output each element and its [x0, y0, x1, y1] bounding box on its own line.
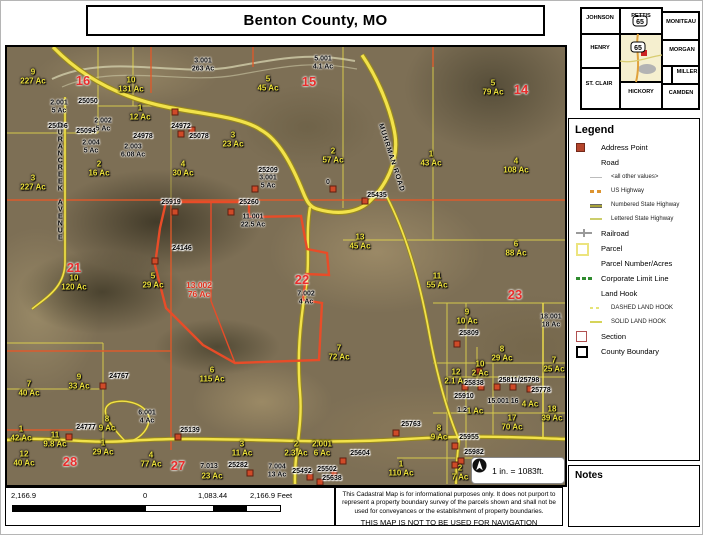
parcel-label: 740 Ac	[18, 380, 39, 397]
corporate-limit-icon	[575, 273, 595, 283]
address-label: 25209	[258, 167, 277, 175]
address-point-marker	[152, 258, 159, 265]
roads	[7, 47, 565, 484]
county-label-miller: MILLER	[677, 70, 698, 76]
legend-item-label: County Boundary	[601, 347, 659, 356]
parcel-label: 1.2	[457, 407, 467, 415]
address-label: 25910	[454, 393, 473, 401]
address-label: 25763	[401, 421, 420, 429]
legend-item-label: Section	[601, 332, 626, 341]
parcel-label: 3227 Ac	[20, 174, 46, 191]
address-point-marker	[330, 186, 337, 193]
north-arrow-icon	[472, 458, 487, 473]
numbered-state-highway-icon	[589, 200, 605, 210]
parcel-label: 2.0015 Ac	[50, 99, 68, 114]
scalebar-label-zero: 0	[143, 491, 147, 500]
section-icon	[575, 331, 595, 341]
parcel-label: 1110 Ac	[388, 460, 413, 477]
legend-item: Road	[575, 157, 693, 167]
section-number-label: 28	[63, 455, 77, 469]
parcel-label: 89 Ac	[99, 415, 116, 432]
county-label-henry: HENRY	[590, 46, 609, 52]
parcel-label: 0	[326, 179, 330, 187]
legend-item-label: Parcel	[601, 244, 622, 253]
parcel-label: 119.8 Ac	[43, 431, 66, 448]
address-label: 25778	[531, 387, 550, 395]
legend-item: Railroad	[575, 228, 693, 238]
parcel-label: 89 Ac	[431, 424, 448, 441]
parcel-label: 311 Ac	[232, 440, 253, 457]
parcel-label: 1839 Ac	[541, 405, 562, 422]
address-label: 25811/25798	[499, 377, 540, 385]
road-casing	[7, 47, 565, 484]
legend-item: Parcel Number/Acres	[575, 258, 693, 268]
county-label-pettis: PETTIS	[631, 14, 651, 20]
parcel-label: 2.0016 Ac	[312, 440, 332, 457]
notes-title: Notes	[575, 470, 693, 481]
address-label: 25078	[189, 133, 208, 141]
address-label: 25955	[459, 434, 478, 442]
address-point-marker	[393, 430, 400, 437]
address-label: 25838	[464, 380, 483, 388]
parcel-label: 23 Ac	[201, 473, 222, 482]
road-name-label: DURANCREEK AVENUE	[56, 123, 64, 242]
legend-item: Land Hook	[575, 288, 693, 298]
address-label: 25260	[239, 199, 258, 207]
parcel-label: 10131 Ac	[118, 76, 144, 93]
address-label: 25604	[350, 450, 369, 458]
parcel-label: 142 Ac	[10, 425, 31, 442]
address-label: 24978	[133, 133, 152, 141]
svg-text:65: 65	[634, 45, 642, 52]
parcel-label: 688 Ac	[505, 240, 526, 257]
parcel-label: 15.001 16	[487, 398, 518, 406]
parcel-label: 6115 Ac	[199, 366, 224, 383]
legend-item: County Boundary	[575, 346, 693, 356]
address-point-marker	[247, 470, 254, 477]
legend-item: Corporate Limit Line	[575, 273, 693, 283]
parcel-label: 216 Ac	[88, 160, 109, 177]
address-label: 24972	[171, 123, 190, 131]
svg-text:65: 65	[636, 19, 644, 26]
parcel-label: 143 Ac	[420, 150, 441, 167]
disclaimer-text: This Cadastral Map is for informational …	[340, 491, 558, 516]
dashed-land-hook-icon	[589, 303, 605, 313]
section-number-label: 16	[76, 74, 90, 88]
parcel-label: 579 Ac	[482, 79, 503, 96]
parcel-label: 2.0036.08 Ac	[121, 143, 145, 158]
legend-item: SOLID LAND HOOK	[589, 317, 693, 327]
road-other-icon	[589, 172, 605, 182]
blank-icon	[575, 157, 595, 167]
parcel-label: 933 Ac	[68, 373, 89, 390]
section-number-label: 14	[514, 83, 528, 97]
scalebar-panel: 2,166.9 0 1,083.44 2,166.9 Feet	[5, 487, 335, 526]
parcel-label: 910 Ac	[456, 308, 477, 325]
legend-item: DASHED LAND HOOK	[589, 303, 693, 313]
address-label: 25492	[292, 468, 311, 476]
address-point-marker	[172, 109, 179, 116]
scalebar-graphic	[12, 505, 281, 512]
us-highway-icon	[589, 186, 605, 196]
legend-item: Parcel	[575, 243, 693, 253]
legend-item-label: Corporate Limit Line	[601, 274, 669, 283]
parcel-lines	[7, 47, 565, 484]
parcel-label: 323 Ac	[222, 131, 243, 148]
address-point-icon	[575, 142, 595, 152]
parcel-label: 11.00122.5 Ac	[241, 213, 265, 228]
parcel-label: 6.0014 Ac	[138, 409, 156, 424]
legend-item-label: SOLID LAND HOOK	[611, 319, 666, 325]
scale-note-text: 1 in. = 1083ft.	[492, 466, 544, 476]
section-number-label: 21	[67, 261, 81, 275]
legend-item-label: US Highway	[611, 188, 644, 194]
address-point-marker	[340, 458, 347, 465]
address-label: 25435	[367, 192, 386, 200]
county-boundary-icon	[575, 346, 595, 356]
parcel-label: 102 Ac	[472, 360, 489, 377]
parcel-label: 2.0025 Ac	[94, 117, 112, 132]
page-title: Benton County, MO	[244, 12, 388, 29]
legend-item: US Highway	[589, 186, 693, 196]
county-label-stclair: ST. CLAIR	[586, 82, 613, 88]
lettered-state-highway-icon	[589, 214, 605, 224]
blank-icon	[575, 288, 595, 298]
parcel-label: 2.0045 Ac	[82, 139, 100, 154]
address-point-marker	[452, 443, 459, 450]
parcel-label: 257 Ac	[322, 147, 343, 164]
address-label: 25982	[464, 449, 483, 457]
parcel-label: 430 Ac	[172, 160, 193, 177]
section-number-label: 27	[171, 459, 185, 473]
section-number-label: 15	[302, 75, 316, 89]
county-label-moniteau: MONITEAU	[666, 20, 696, 26]
parcel-label: 529 Ac	[142, 272, 163, 289]
parcel-label: 725 Ac	[543, 356, 564, 373]
legend-item-label: <all other values>	[611, 174, 658, 180]
parcel-label: 27 Ac	[452, 464, 469, 481]
parcel-label: 1 Ac	[467, 408, 484, 417]
address-label: 25638	[322, 475, 341, 483]
parcel-label: 7.013	[200, 463, 218, 471]
address-point-marker	[228, 209, 235, 216]
parcel-label: 7.00413 Ac	[268, 463, 286, 478]
legend-item-label: DASHED LAND HOOK	[611, 305, 673, 311]
county-label-hickory: HICKORY	[628, 90, 654, 96]
legend-item-label: Lettered State Highway	[611, 216, 673, 222]
section-number-label: 22	[295, 273, 309, 287]
parcel-label: 5.0014.1 Ac	[313, 55, 333, 70]
parcel-label: 545 Ac	[257, 75, 278, 92]
parcel-icon	[575, 243, 595, 253]
legend-item-label: Parcel Number/Acres	[601, 259, 672, 268]
parcel-label: 1345 Ac	[349, 233, 370, 250]
parcel-label: 829 Ac	[491, 345, 512, 362]
legend-items: Address PointRoad<all other values>US Hi…	[575, 142, 693, 356]
parcel-label: 18.00118 Ac	[540, 313, 561, 328]
highlighted-parcel-label: 13.00276 Ac	[186, 281, 212, 299]
county-label-morgan: MORGAN	[669, 48, 694, 54]
legend-item-label: Land Hook	[601, 289, 637, 298]
parcel-label: 3.001263 Ac	[192, 57, 214, 72]
address-point-marker	[178, 131, 185, 138]
legend-item: Address Point	[575, 142, 693, 152]
blank-icon	[575, 258, 595, 268]
parcel-label: 3.0015 Ac	[259, 174, 277, 189]
parcel-label: 1155 Ac	[426, 272, 447, 289]
address-point-marker	[454, 341, 461, 348]
map-linework	[7, 47, 565, 485]
address-label: 25919	[161, 199, 180, 207]
parcel-label: 772 Ac	[328, 344, 349, 361]
scale-note-box: 1 in. = 1083ft.	[471, 457, 565, 484]
navigation-warning-text: THIS MAP IS NOT TO BE USED FOR NAVIGATIO…	[340, 518, 558, 527]
scalebar-label-right: 2,166.9 Feet	[250, 491, 292, 500]
cadastral-map-page: Benton County, MO	[0, 0, 703, 535]
parcel-label: 129 Ac	[92, 439, 113, 456]
parcel-label: 7.0024 Ac	[297, 290, 315, 305]
address-label: 24146	[172, 245, 191, 253]
scalebar-label-mid: 1,083.44	[198, 491, 227, 500]
address-label: 25502	[317, 466, 336, 474]
legend-title: Legend	[575, 124, 693, 136]
legend-item: <all other values>	[589, 172, 693, 182]
address-label: 25139	[180, 427, 199, 435]
solid-land-hook-icon	[589, 317, 605, 327]
county-label-johnson: JOHNSON	[586, 16, 614, 22]
legend-item: Section	[575, 331, 693, 341]
address-point-marker	[100, 383, 107, 390]
legend-item-label: Numbered State Highway	[611, 202, 679, 208]
parcel-label: 10120 Ac	[61, 274, 87, 291]
parcel-label: 9227 Ac	[20, 68, 46, 85]
section-number-label: 23	[508, 288, 522, 302]
address-label: 25050	[78, 98, 97, 106]
county-locator-inset: 65 65 JOHNSONPETTISMONITEAUHENRYMORGANMI…	[578, 5, 702, 113]
parcel-label: 4108 Ac	[503, 157, 529, 174]
parcel-label: 112 Ac	[129, 104, 150, 121]
address-label: 24767	[109, 373, 128, 381]
legend-item-label: Railroad	[601, 229, 629, 238]
legend-item: Numbered State Highway	[589, 200, 693, 210]
parcel-label: 4 Ac	[522, 401, 539, 410]
legend-item-label: Road	[601, 158, 619, 167]
address-label: 25282	[228, 462, 247, 470]
title-box: Benton County, MO	[86, 5, 545, 36]
map[interactable]: 9227 Ac10131 Ac112 Ac3227 Ac216 Ac430 Ac…	[5, 45, 567, 487]
scalebar-label-left: 2,166.9	[11, 491, 36, 500]
county-label-camden: CAMDEN	[669, 91, 694, 97]
address-point-marker	[252, 186, 259, 193]
notes-panel[interactable]: Notes	[568, 465, 700, 527]
parcel-label: 1770 Ac	[501, 414, 522, 431]
parcel-label: 1240 Ac	[13, 450, 34, 467]
address-label: 25094	[76, 128, 95, 136]
address-label: 24777	[76, 424, 95, 432]
disclaimer-panel: This Cadastral Map is for informational …	[335, 487, 563, 526]
address-point-marker	[172, 209, 179, 216]
railroad-icon	[575, 228, 595, 238]
legend-item: Lettered State Highway	[589, 214, 693, 224]
address-label: 25809	[459, 330, 478, 338]
parcel-label: 477 Ac	[140, 451, 161, 468]
legend-item-label: Address Point	[601, 143, 648, 152]
parcel-label: 22.3 Ac	[284, 440, 307, 457]
legend-panel: Legend Address PointRoad<all other value…	[568, 118, 700, 461]
